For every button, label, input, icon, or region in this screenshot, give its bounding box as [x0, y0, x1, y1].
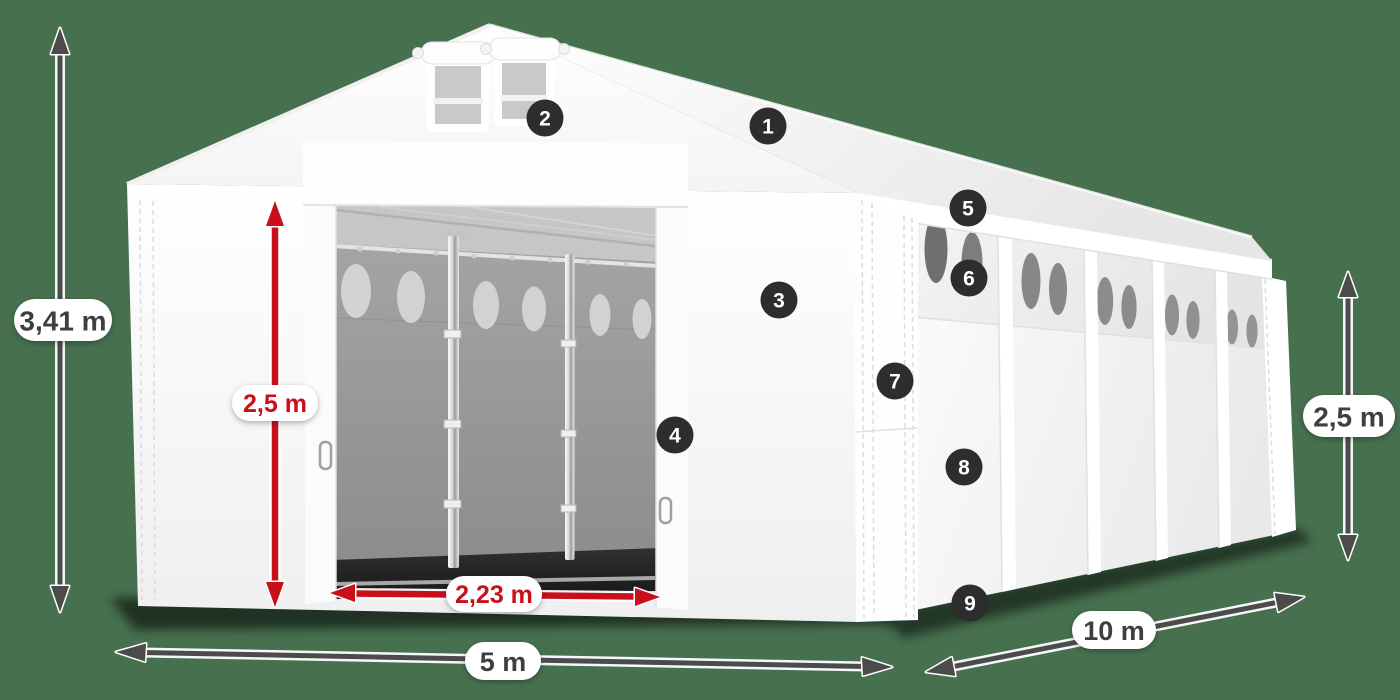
callout-badge-5[interactable]: 5 — [950, 190, 987, 227]
door-interior-view — [330, 200, 665, 606]
callout-badge-8[interactable]: 8 — [946, 449, 983, 486]
door-header — [303, 141, 688, 207]
callout-number: 1 — [762, 116, 774, 139]
side-height-label: 2,5 m — [1313, 402, 1385, 433]
side-window — [1121, 285, 1136, 329]
side-window — [1022, 253, 1041, 309]
callout-number: 7 — [889, 371, 901, 394]
door-width-label: 2,23 m — [455, 581, 533, 609]
callout-badge-3[interactable]: 3 — [761, 282, 798, 319]
callout-badge-2[interactable]: 2 — [527, 100, 564, 137]
callout-badge-1[interactable]: 1 — [750, 108, 787, 145]
callout-number: 8 — [958, 457, 970, 480]
callout-badge-9[interactable]: 9 — [952, 585, 989, 622]
corner-pole — [854, 192, 918, 622]
callout-number: 5 — [962, 198, 974, 221]
callout-number: 6 — [963, 268, 975, 291]
callout-badge-7[interactable]: 7 — [877, 363, 914, 400]
vent-roller-icon — [489, 38, 561, 60]
callout-number: 9 — [964, 593, 976, 616]
callout-number: 4 — [669, 425, 681, 448]
side-window — [1049, 263, 1067, 315]
callout-number: 2 — [539, 108, 551, 131]
total-height-label: 3,41 m — [19, 306, 106, 337]
width-label: 5 m — [480, 647, 527, 677]
side-window — [1246, 315, 1257, 348]
callout-badge-6[interactable]: 6 — [951, 260, 988, 297]
side-window — [1165, 295, 1179, 336]
door-right-leg — [656, 204, 688, 610]
callout-badge-4[interactable]: 4 — [657, 417, 694, 454]
tent-dimension-diagram: 3,41 m 2,5 m 2,23 m 5 m — [0, 0, 1400, 700]
callout-number: 3 — [773, 290, 785, 313]
side-window — [1097, 277, 1113, 325]
length-label: 10 m — [1083, 616, 1145, 646]
inner-height-label: 2,5 m — [243, 390, 307, 418]
side-window — [1186, 301, 1199, 339]
